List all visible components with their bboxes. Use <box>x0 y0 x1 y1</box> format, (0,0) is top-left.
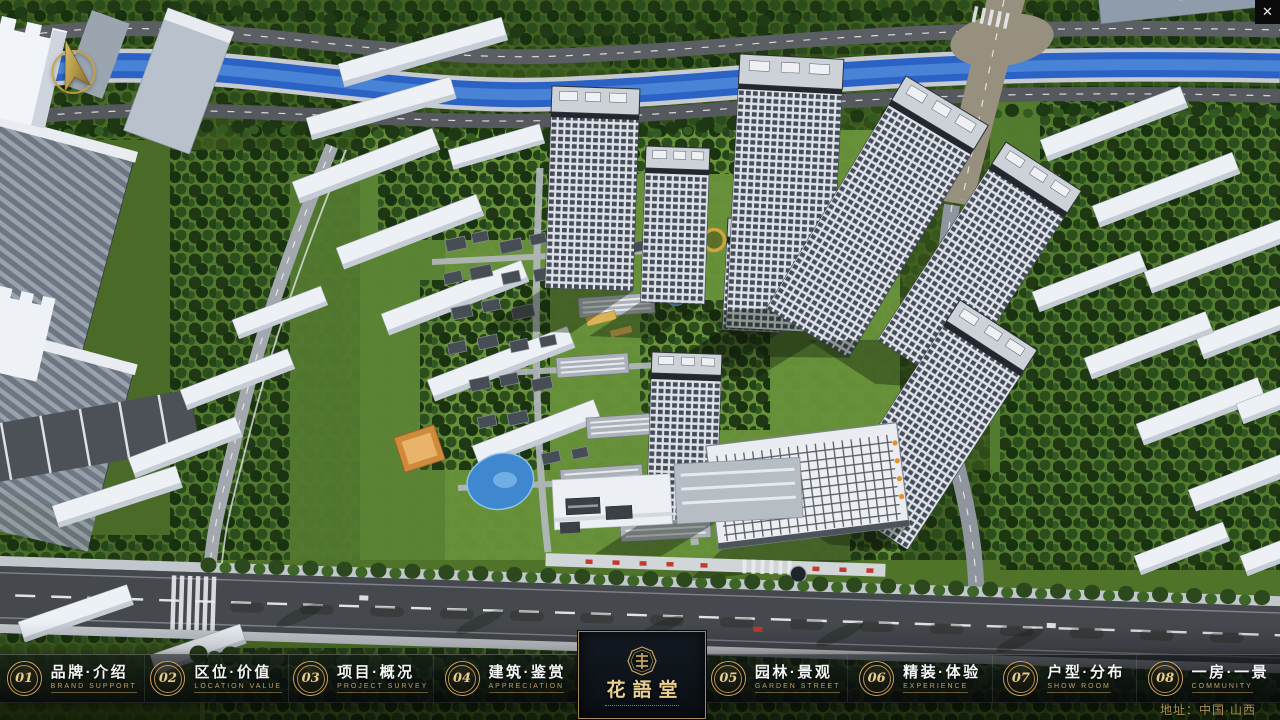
nav-label-en: EXPERIENCE <box>903 683 968 693</box>
nav-label-zh: 园林·景观 <box>755 665 833 680</box>
nav-label-en: PROJECT SURVEY <box>337 683 428 693</box>
nav-item-project[interactable]: 03 项目·概况 PROJECT SURVEY <box>289 655 434 702</box>
nav-label-zh: 区位·价值 <box>194 665 272 680</box>
nav-number-badge: 07 <box>1003 661 1038 696</box>
nav-label-zh: 一房·一景 <box>1192 665 1270 680</box>
nav-item-floorplan[interactable]: 07 户型·分布 SHOW ROOM <box>993 655 1137 702</box>
nav-group-left: 01 品牌·介绍 BRAND SUPPORT 02 区位·价值 LOCATION… <box>0 655 578 702</box>
nav-item-view[interactable]: 08 一房·一景 COMMUNITY <box>1137 655 1280 702</box>
close-button[interactable]: ✕ <box>1255 0 1280 24</box>
brand-logo[interactable]: 花語堂 <box>578 631 706 719</box>
nav-number-badge: 01 <box>7 661 42 696</box>
nav-label-en: APPRECIATION <box>489 683 565 693</box>
brand-tagline-microtext <box>605 704 679 706</box>
brand-title: 花語堂 <box>599 681 684 700</box>
nav-item-architecture[interactable]: 04 建筑·鉴赏 APPRECIATION <box>434 655 579 702</box>
seal-icon <box>627 645 657 677</box>
nav-label-en: GARDEN STREET <box>755 683 841 693</box>
nav-number-badge: 02 <box>150 661 185 696</box>
nav-number-badge: 05 <box>711 661 746 696</box>
nav-number-badge: 08 <box>1148 661 1183 696</box>
nav-label-zh: 户型·分布 <box>1047 665 1125 680</box>
close-icon: ✕ <box>1262 5 1273 20</box>
nav-label-zh: 精装·体验 <box>903 665 981 680</box>
compass-north-icon <box>38 32 108 108</box>
nav-item-location[interactable]: 02 区位·价值 LOCATION VALUE <box>145 655 290 702</box>
nav-label-zh: 品牌·介绍 <box>51 665 129 680</box>
nav-label-zh: 建筑·鉴赏 <box>489 665 567 680</box>
nav-label-zh: 项目·概况 <box>337 665 415 680</box>
nav-number-badge: 03 <box>293 661 328 696</box>
project-address: 地址：中国·山西 <box>1160 701 1256 718</box>
nav-item-brand[interactable]: 01 品牌·介绍 BRAND SUPPORT <box>0 655 145 702</box>
nav-label-en: COMMUNITY <box>1192 683 1253 693</box>
nav-item-garden[interactable]: 05 园林·景观 GARDEN STREET <box>704 655 848 702</box>
car <box>359 595 368 600</box>
nav-label-en: SHOW ROOM <box>1047 683 1111 693</box>
nav-number-badge: 06 <box>859 661 894 696</box>
nav-group-right: 05 园林·景观 GARDEN STREET 06 精装·体验 EXPERIEN… <box>704 655 1280 702</box>
nav-number-badge: 04 <box>445 661 480 696</box>
nav-label-en: LOCATION VALUE <box>194 683 282 693</box>
nav-label-en: BRAND SUPPORT <box>51 683 137 693</box>
aerial-masterplan-render <box>0 0 1280 720</box>
nav-item-interior[interactable]: 06 精装·体验 EXPERIENCE <box>848 655 992 702</box>
